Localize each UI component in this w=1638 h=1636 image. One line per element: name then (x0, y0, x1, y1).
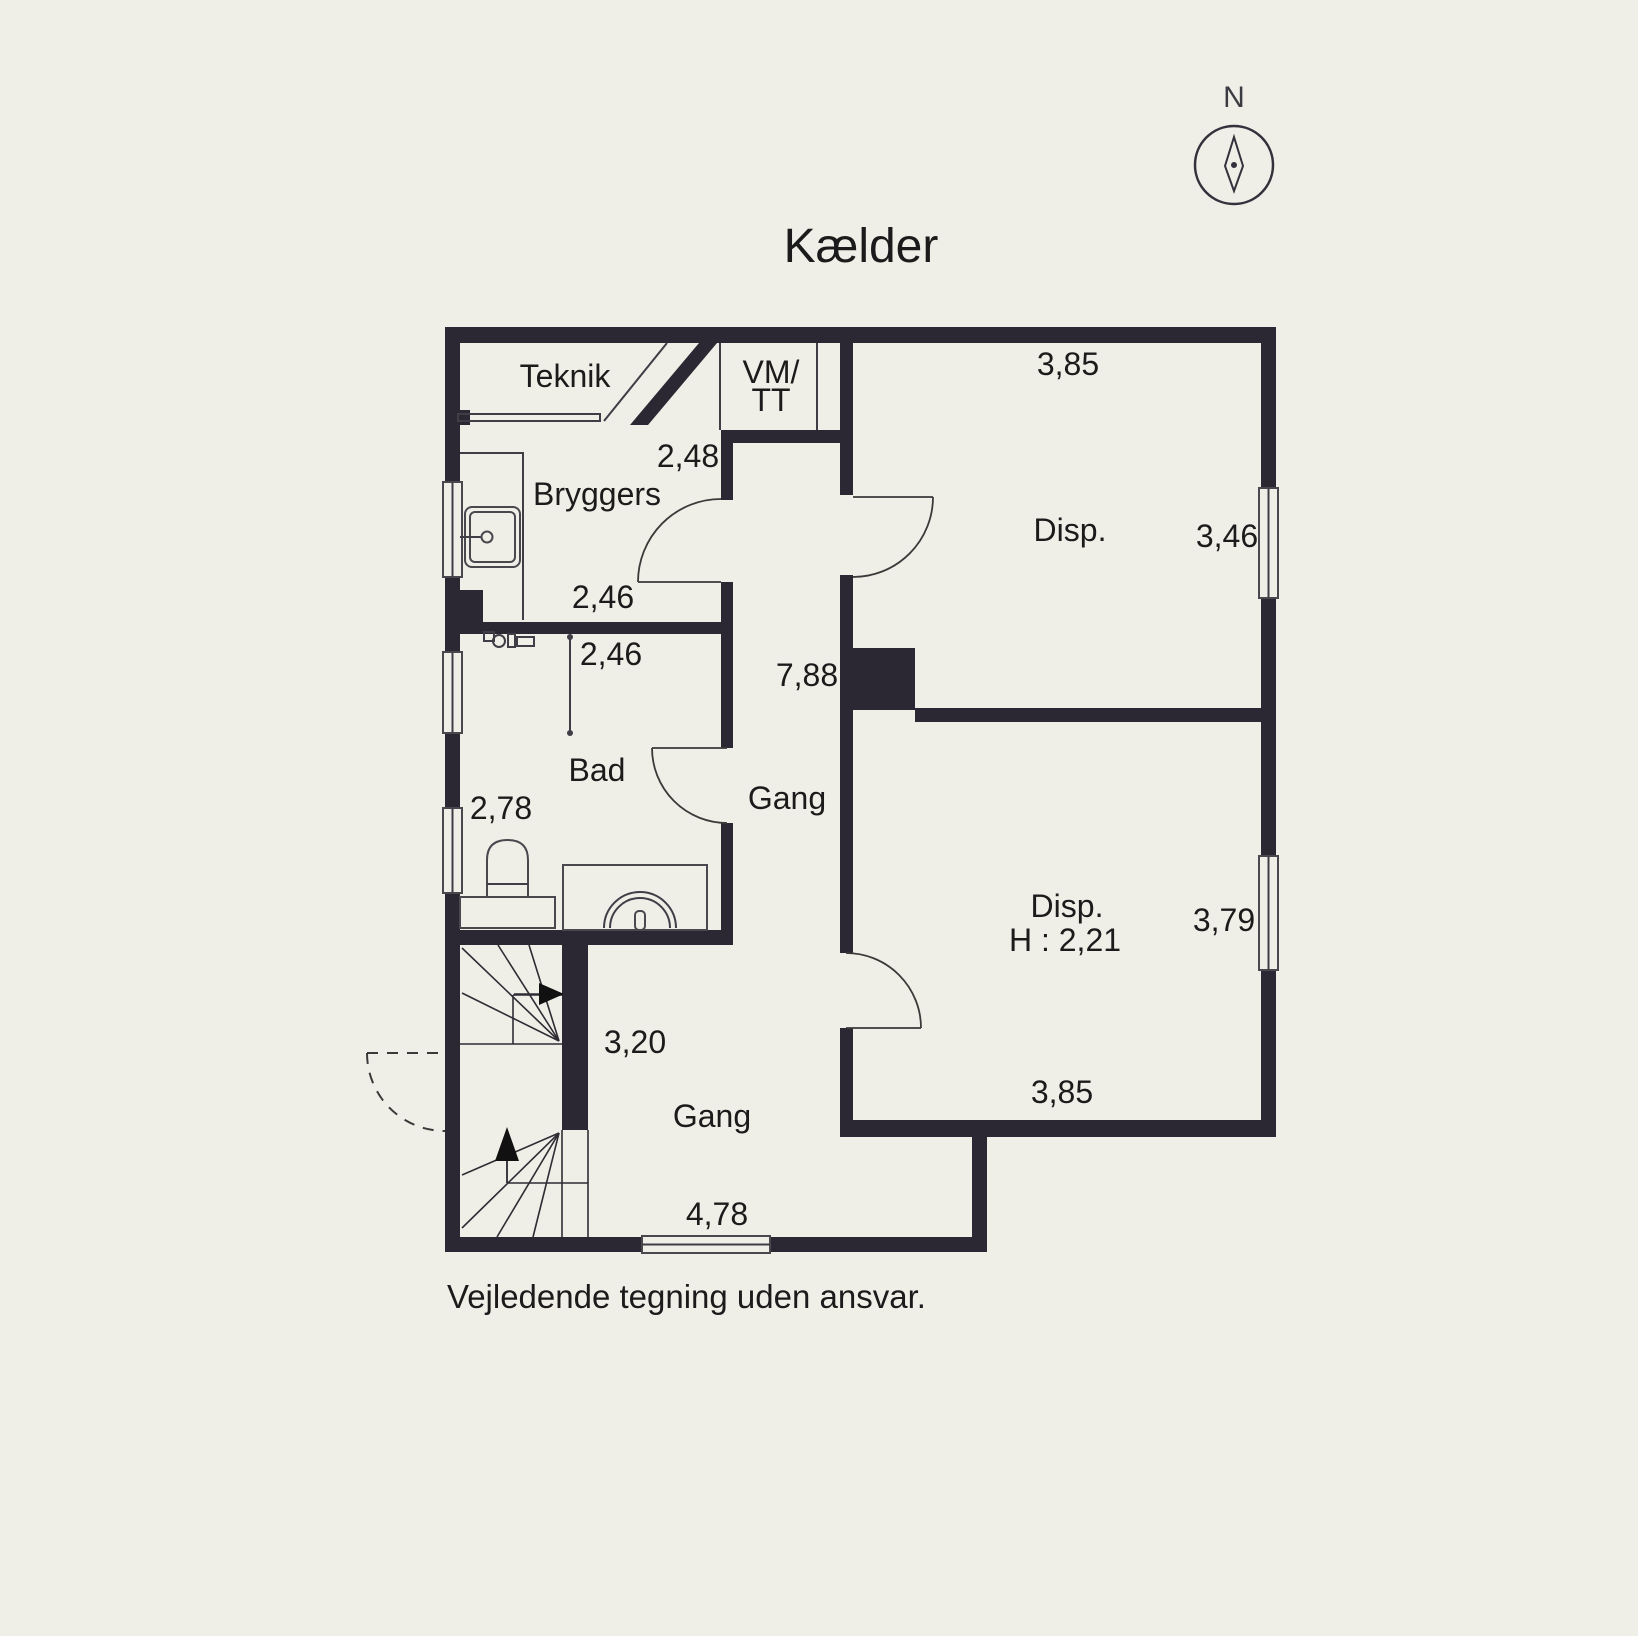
dim-disp-lower-depth: 3,79 (1193, 902, 1255, 938)
disclaimer-text: Vejledende tegning uden ansvar. (447, 1278, 926, 1315)
wall-corridor-right-seg1 (840, 343, 853, 495)
room-label-gang-lower: Gang (673, 1098, 751, 1134)
compass-north-label: N (1223, 81, 1245, 114)
wall-disp-bottom (840, 1120, 1276, 1137)
wall-right-seg1 (1261, 327, 1276, 488)
dim-teknik-width: 2,48 (657, 438, 719, 474)
floor-plan-page: N Kælder (0, 0, 1638, 1636)
teknik-shelf (458, 414, 600, 421)
dim-gang-lower-width: 4,78 (686, 1196, 748, 1232)
dim-disp-upper-depth: 3,46 (1196, 518, 1258, 554)
interior-walls (445, 343, 1261, 1130)
dim-disp-lower-width: 3,85 (1031, 1074, 1093, 1110)
shower-partition (567, 634, 573, 736)
wall-right-seg2 (1261, 598, 1276, 856)
window-bad-left-2 (443, 808, 462, 893)
wall-corridor-left-seg2 (721, 582, 733, 748)
room-label-disp-lower: Disp. (1031, 888, 1104, 924)
wall-chimney-block (852, 648, 915, 710)
stair-arrow-right-icon (539, 983, 564, 1005)
washbasin (563, 865, 707, 930)
stairs-lower-flight (462, 1127, 588, 1237)
wall-left-seg4 (445, 893, 460, 1252)
wall-right-seg3 (1261, 970, 1276, 1137)
toilet (460, 840, 555, 928)
room-label-disp-upper: Disp. (1034, 512, 1107, 548)
window-disp-lower-right (1259, 856, 1278, 970)
wall-corridor-left-seg1 (721, 443, 733, 500)
window-disp-upper-right (1259, 488, 1278, 598)
door-disp-upper (853, 497, 933, 577)
room-label-bad: Bad (569, 752, 626, 788)
floor-plan-drawing: N Kælder (0, 0, 1638, 1636)
room-label-gang-upper: Gang (748, 780, 826, 816)
room-labels: Teknik VM/ TT Bryggers Disp. Bad Gang Di… (520, 354, 1121, 1134)
wall-corridor-right-seg2 (840, 575, 853, 953)
door-exterior-dashed (367, 1053, 445, 1131)
window-bryggers-left (443, 482, 462, 577)
compass: N (1195, 81, 1273, 204)
door-disp-lower (846, 953, 921, 1028)
stair-arrow-up-icon (495, 1127, 519, 1161)
wall-pier (445, 590, 483, 622)
stairs-upper-flight (460, 945, 564, 1044)
wall-stairwell (562, 945, 588, 1130)
page-title: Kælder (784, 220, 939, 273)
room-label-vmtt-line2: TT (751, 382, 790, 418)
dim-bad-width: 2,46 (580, 636, 642, 672)
wall-left-seg3 (445, 733, 460, 808)
dim-gang-length: 7,88 (776, 657, 838, 693)
wall-left-seg1 (445, 327, 460, 482)
dim-stair-width: 3,20 (604, 1024, 666, 1060)
dim-disp-upper-width: 3,85 (1037, 346, 1099, 382)
window-gang-bottom (642, 1236, 770, 1253)
wall-vmtt-bottom (721, 430, 853, 443)
dim-bad-depth: 2,78 (470, 790, 532, 826)
wall-corridor-left-seg3 (721, 823, 733, 945)
room-label-bryggers: Bryggers (533, 476, 661, 512)
wall-bottom-seg1 (445, 1237, 642, 1252)
wall-bad-bottom (445, 930, 733, 945)
room-label-disp-lower-height: H : 2,21 (1009, 922, 1121, 958)
shower-valve-icon (484, 632, 534, 647)
wall-teknik-diagonal (630, 343, 717, 425)
door-bad (652, 748, 727, 823)
bryggers-sink (460, 507, 520, 567)
wall-bottom-step (972, 1137, 987, 1252)
dim-bryggers-width: 2,46 (572, 579, 634, 615)
wall-corridor-right-seg3 (840, 1028, 853, 1120)
compass-center-dot (1231, 162, 1237, 168)
window-bad-left-1 (443, 652, 462, 733)
wall-top (445, 327, 1276, 343)
wall-disp-divider (915, 708, 1261, 722)
room-label-teknik: Teknik (520, 358, 612, 394)
wall-bottom-seg2 (770, 1237, 987, 1252)
